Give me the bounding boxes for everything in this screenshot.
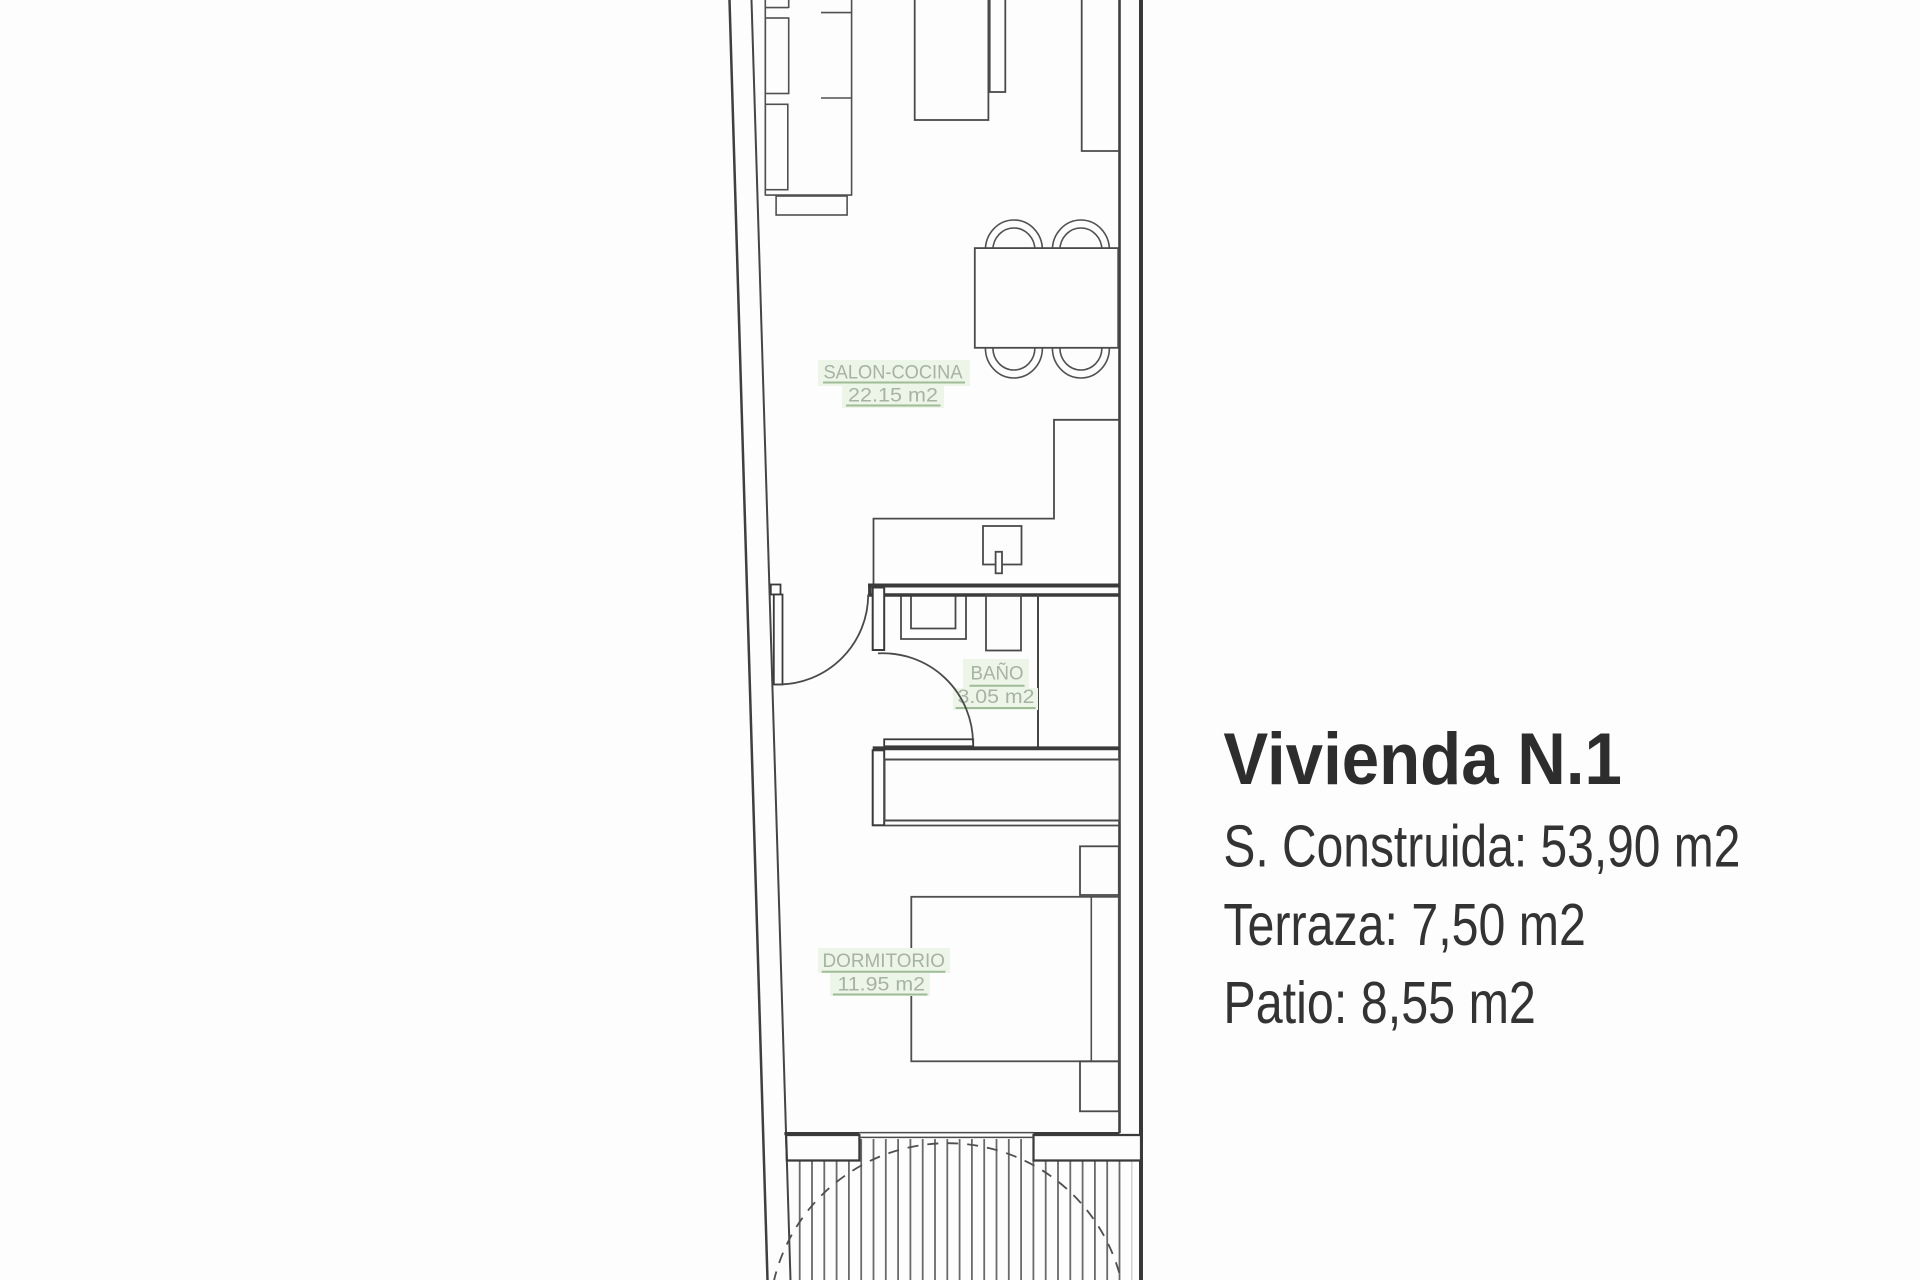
svg-text:S. Construida: 53,90 m2: S. Construida: 53,90 m2	[1223, 814, 1740, 880]
svg-text:Patio: 8,55 m2: Patio: 8,55 m2	[1223, 970, 1536, 1036]
svg-text:Terraza: 7,50 m2: Terraza: 7,50 m2	[1223, 892, 1586, 958]
svg-text:Vivienda N.1: Vivienda N.1	[1223, 719, 1622, 800]
